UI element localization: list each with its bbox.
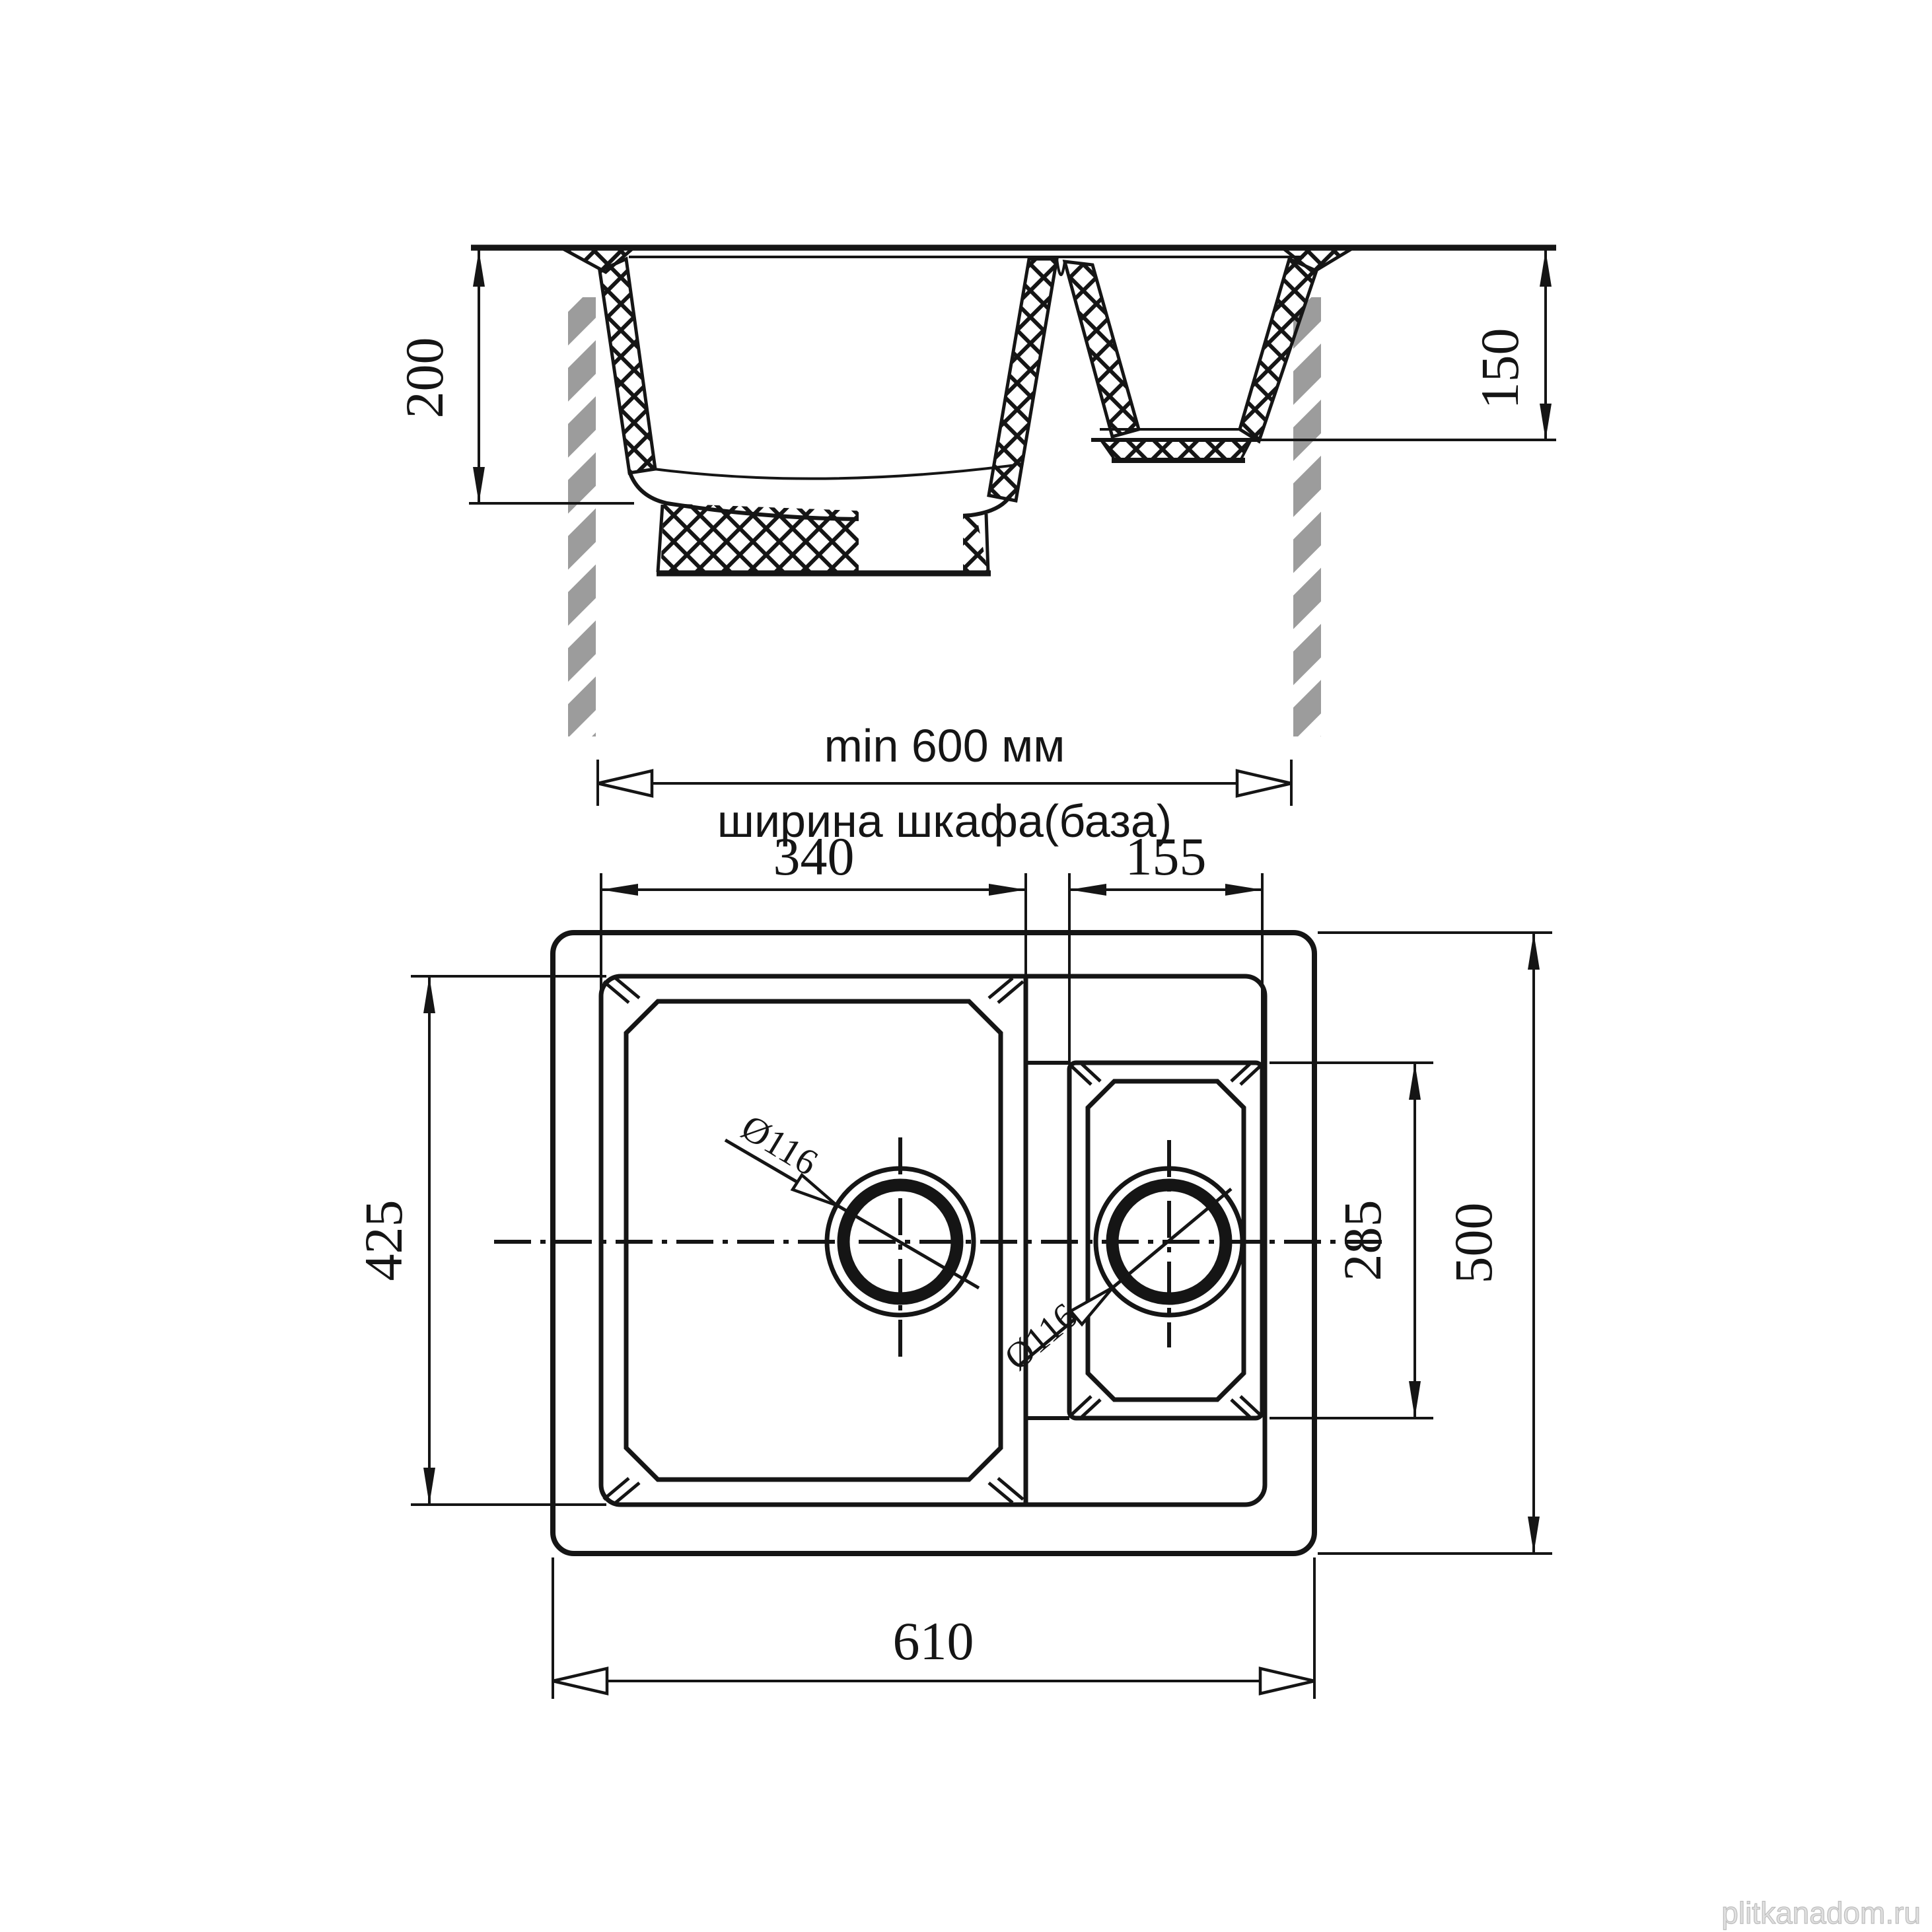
sink-technical-drawing: 200 150 min 600 мм ширина шкафа(база) xyxy=(0,0,1932,1932)
bowl-divider-left-band xyxy=(989,259,1057,501)
dim-425-arrow-up xyxy=(423,976,435,1013)
cabinet-min-width-label: min 600 мм xyxy=(824,720,1065,771)
dim-600-arrow-right xyxy=(1237,771,1291,796)
main-bowl-bottom-inner xyxy=(654,465,1016,479)
dim-610-arrow-right xyxy=(1260,1668,1314,1694)
dim-610-value: 610 xyxy=(893,1611,974,1671)
main-bowl-left-wall xyxy=(600,259,655,473)
main-skirt-drain-gap xyxy=(859,501,963,571)
dim-500-arrow-down xyxy=(1528,1517,1540,1554)
dim-340-extensions xyxy=(601,873,1026,999)
dim-155-extensions xyxy=(1069,873,1262,1065)
dim-200-arrow-down xyxy=(473,467,485,503)
dim-depth-main: 200 xyxy=(394,250,634,503)
drawing-canvas: 200 150 min 600 мм ширина шкафа(база) xyxy=(0,0,1932,1932)
dim-285-arrow-up xyxy=(1409,1063,1421,1100)
dim-425-arrow-down xyxy=(423,1468,435,1505)
small-foot-hatch xyxy=(1102,441,1250,459)
dim-155-arrow-left xyxy=(1069,884,1106,896)
dim-610-arrow-left xyxy=(553,1668,607,1694)
watermark-text: plitkanadom.ru xyxy=(1721,1896,1921,1930)
dim-155-value: 155 xyxy=(1126,826,1207,886)
dim-200-arrow-up xyxy=(473,250,485,287)
dim-200-value: 200 xyxy=(394,338,454,419)
dim-285-value: 285 xyxy=(1332,1200,1392,1281)
dim-285-arrow-down xyxy=(1409,1381,1421,1418)
cross-section-view: 200 150 min 600 мм ширина шкафа(база) xyxy=(394,248,1556,847)
dim-500-value: 500 xyxy=(1443,1203,1503,1284)
dim-340-arrow-left xyxy=(601,884,638,896)
dim-overall-width: 610 xyxy=(553,1557,1314,1699)
plan-view: Ø116 Ø116 340 155 42 xyxy=(353,826,1552,1699)
cabinet-wall-left xyxy=(568,297,596,736)
dim-150-value: 150 xyxy=(1470,328,1530,410)
dim-small-bowl-width: 155 xyxy=(1069,826,1262,1065)
dim-150-arrow-up xyxy=(1540,250,1552,287)
dim-500-arrow-up xyxy=(1528,933,1540,970)
dim-600-arrow-left xyxy=(598,771,652,796)
dim-155-arrow-right xyxy=(1225,884,1262,896)
dim-340-value: 340 xyxy=(773,826,855,886)
small-drain-diameter-label: Ø116 xyxy=(997,1295,1085,1378)
dim-150-arrow-down xyxy=(1540,404,1552,440)
dim-main-bowl-width: 340 xyxy=(601,826,1026,999)
bowl-divider-right-band xyxy=(1065,262,1139,437)
dim-340-arrow-right xyxy=(989,884,1026,896)
cabinet-wall-right xyxy=(1293,297,1321,736)
dim-425-value: 425 xyxy=(353,1200,413,1281)
